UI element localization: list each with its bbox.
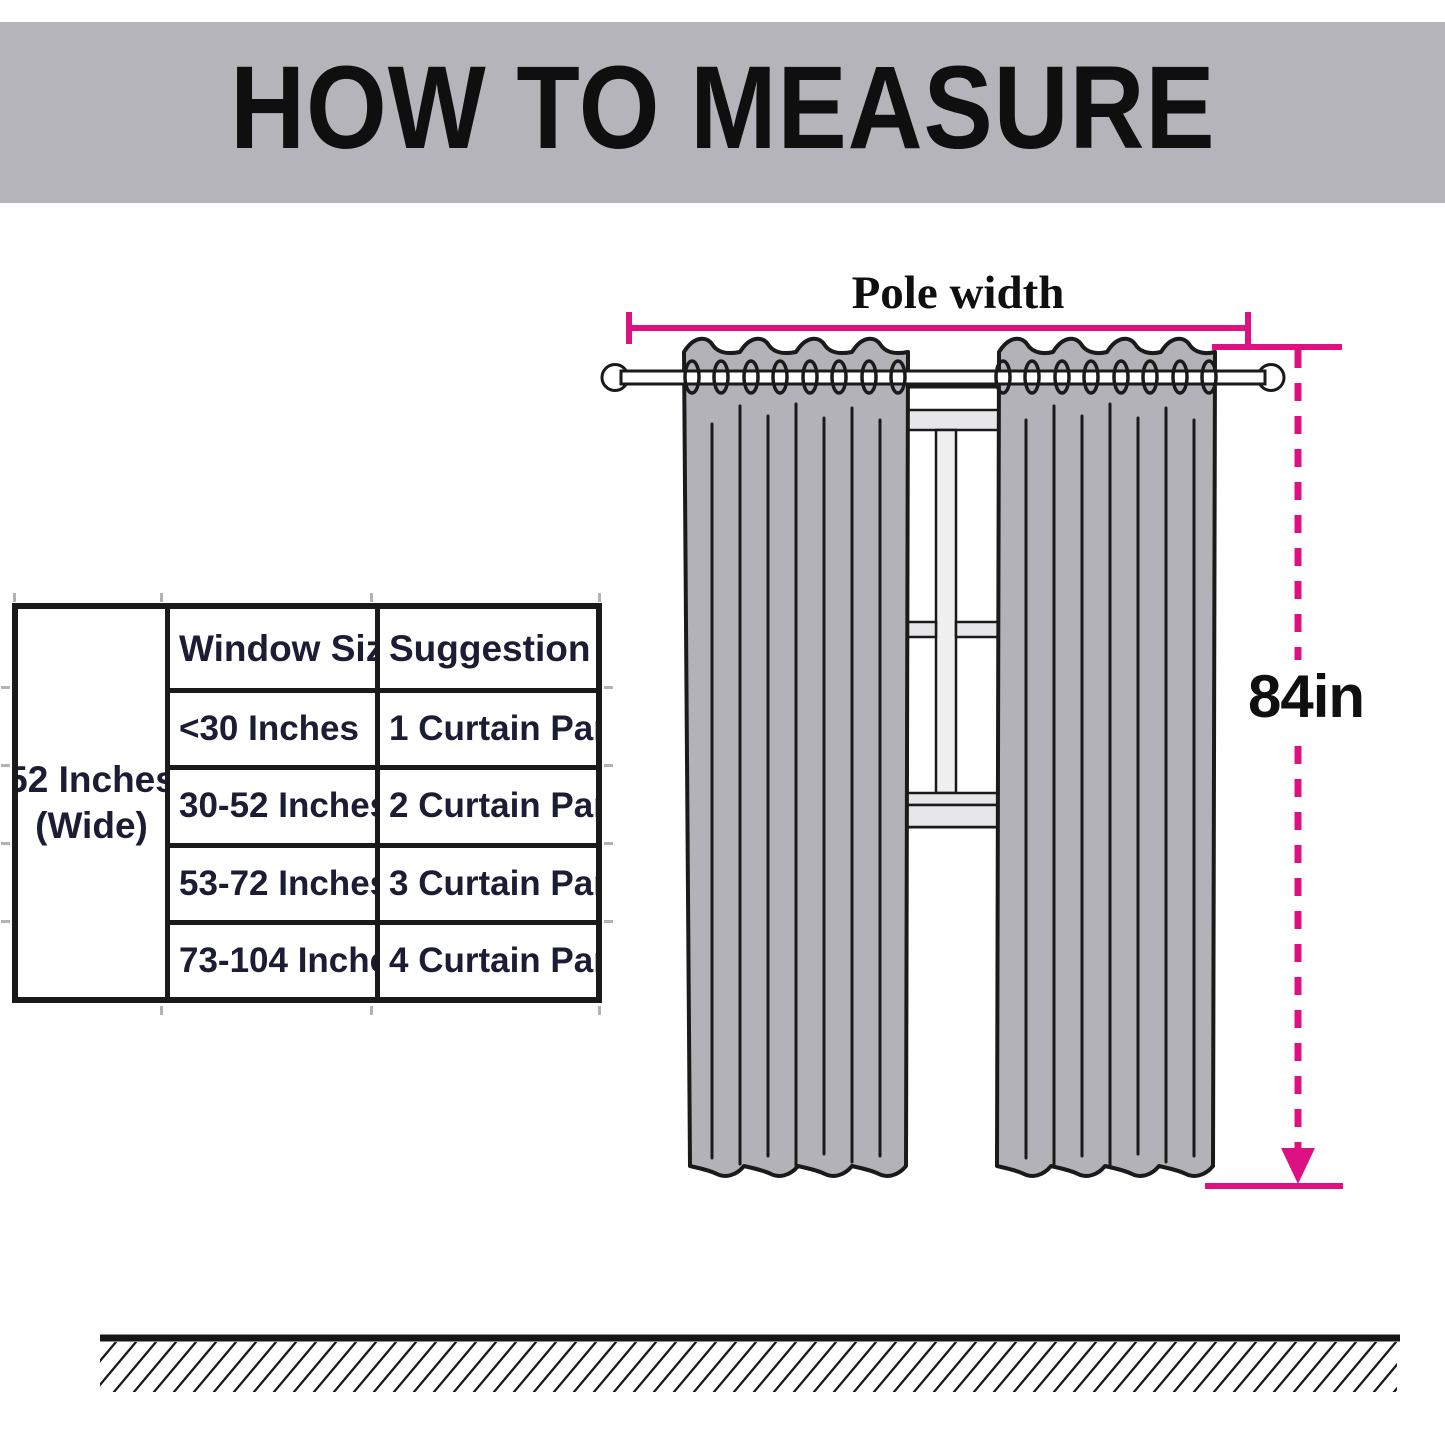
table-header-suggestion: Suggestion — [375, 609, 596, 688]
table-row-window-size: 30-52 Inches — [165, 765, 375, 842]
table-side-label: 52 Inches (Wide) — [18, 609, 165, 997]
table-header-window-size: Window Size — [165, 609, 375, 688]
floor-hatch — [100, 1342, 1397, 1392]
left-curtain-panel — [684, 339, 908, 1176]
table-row-window-size: <30 Inches — [165, 688, 375, 765]
height-measure-line — [1205, 347, 1343, 1186]
table-row-suggestion: 3 Curtain Panel — [375, 843, 596, 920]
down-arrowhead — [1281, 1148, 1315, 1184]
table-row-suggestion: 1 Curtain Panel — [375, 688, 596, 765]
table-row-suggestion: 2 Curtain Panel — [375, 765, 596, 842]
table-row-window-size: 73-104 Inches — [165, 920, 375, 997]
how-to-measure-infographic: HOW TO MEASURE — [0, 0, 1445, 1445]
right-curtain-panel — [997, 339, 1215, 1176]
table-row-window-size: 53-72 Inches — [165, 843, 375, 920]
floor-line — [100, 1338, 1400, 1392]
table-side-label-line1: 52 Inches — [18, 757, 165, 803]
sizing-table: 52 Inches (Wide) Window Size Suggestion … — [12, 603, 602, 1003]
table-row-suggestion: 4 Curtain Panel — [375, 920, 596, 997]
pole-width-label: Pole width — [852, 266, 1065, 320]
height-label: 84in — [1242, 660, 1370, 733]
table-side-label-line2: (Wide) — [35, 803, 148, 849]
